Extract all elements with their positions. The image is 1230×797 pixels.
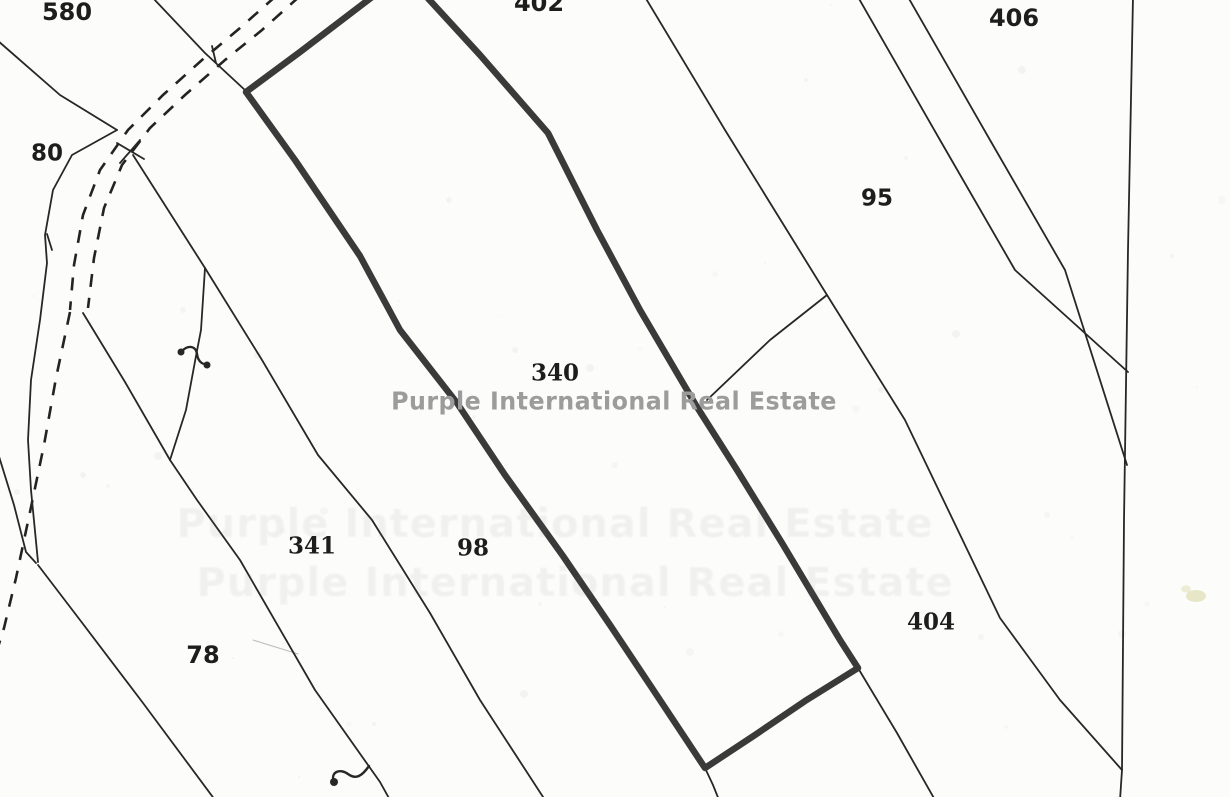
squiggle-dot-left bbox=[178, 349, 185, 356]
boundary-right-vertical bbox=[1120, 0, 1133, 797]
boundary-95-404-spur bbox=[707, 295, 827, 400]
parcel-label-402: 402 bbox=[514, 0, 564, 15]
parcel-label-340: 340 bbox=[531, 362, 579, 385]
hook-curl bbox=[333, 766, 369, 782]
boundary-340-bottom-right-ext bbox=[858, 668, 935, 797]
road-dashed-right bbox=[88, 0, 300, 308]
boundary-340-bottom-left-ext bbox=[705, 768, 719, 797]
x-mark-stroke-2 bbox=[120, 140, 140, 163]
parcel-label-95: 95 bbox=[861, 188, 893, 211]
boundary-x-to-junction bbox=[133, 155, 205, 268]
road-dashed-lower bbox=[0, 312, 70, 660]
squiggle-dot-right bbox=[204, 362, 211, 369]
boundary-406-lower bbox=[908, 0, 1127, 465]
faint-scratch-78 bbox=[253, 640, 298, 654]
parcel-label-404: 404 bbox=[907, 611, 955, 634]
yellow-smudge-small bbox=[1181, 586, 1191, 593]
parcel-label-580: 580 bbox=[42, 0, 92, 24]
parcel-label-78: 78 bbox=[186, 643, 219, 667]
boundary-406-upper bbox=[858, 0, 1128, 372]
parcel-label-341: 341 bbox=[288, 535, 336, 558]
squiggle-curl bbox=[181, 347, 207, 364]
boundary-78-left bbox=[38, 565, 215, 797]
boundary-road-spur bbox=[83, 313, 170, 460]
parcel-label-406: 406 bbox=[989, 6, 1039, 30]
boundary-95-404-long bbox=[645, 0, 1122, 770]
watermark-text: Purple International Real Estate bbox=[391, 387, 837, 416]
road-dashed-left bbox=[70, 0, 276, 310]
hook-dot bbox=[330, 778, 338, 786]
parcel-label-98: 98 bbox=[457, 537, 489, 560]
boundary-580-402 bbox=[152, 0, 246, 91]
boundary-vertical-squiggle bbox=[170, 268, 205, 460]
boundary-80-upper bbox=[0, 40, 117, 130]
survey-tick-2 bbox=[47, 234, 52, 250]
ghost-watermark-row-2: Purple International Real Estate bbox=[196, 560, 953, 606]
parcel-label-80: 80 bbox=[31, 143, 63, 166]
cadastral-map: Purple International Real EstatePurple I… bbox=[0, 0, 1230, 797]
